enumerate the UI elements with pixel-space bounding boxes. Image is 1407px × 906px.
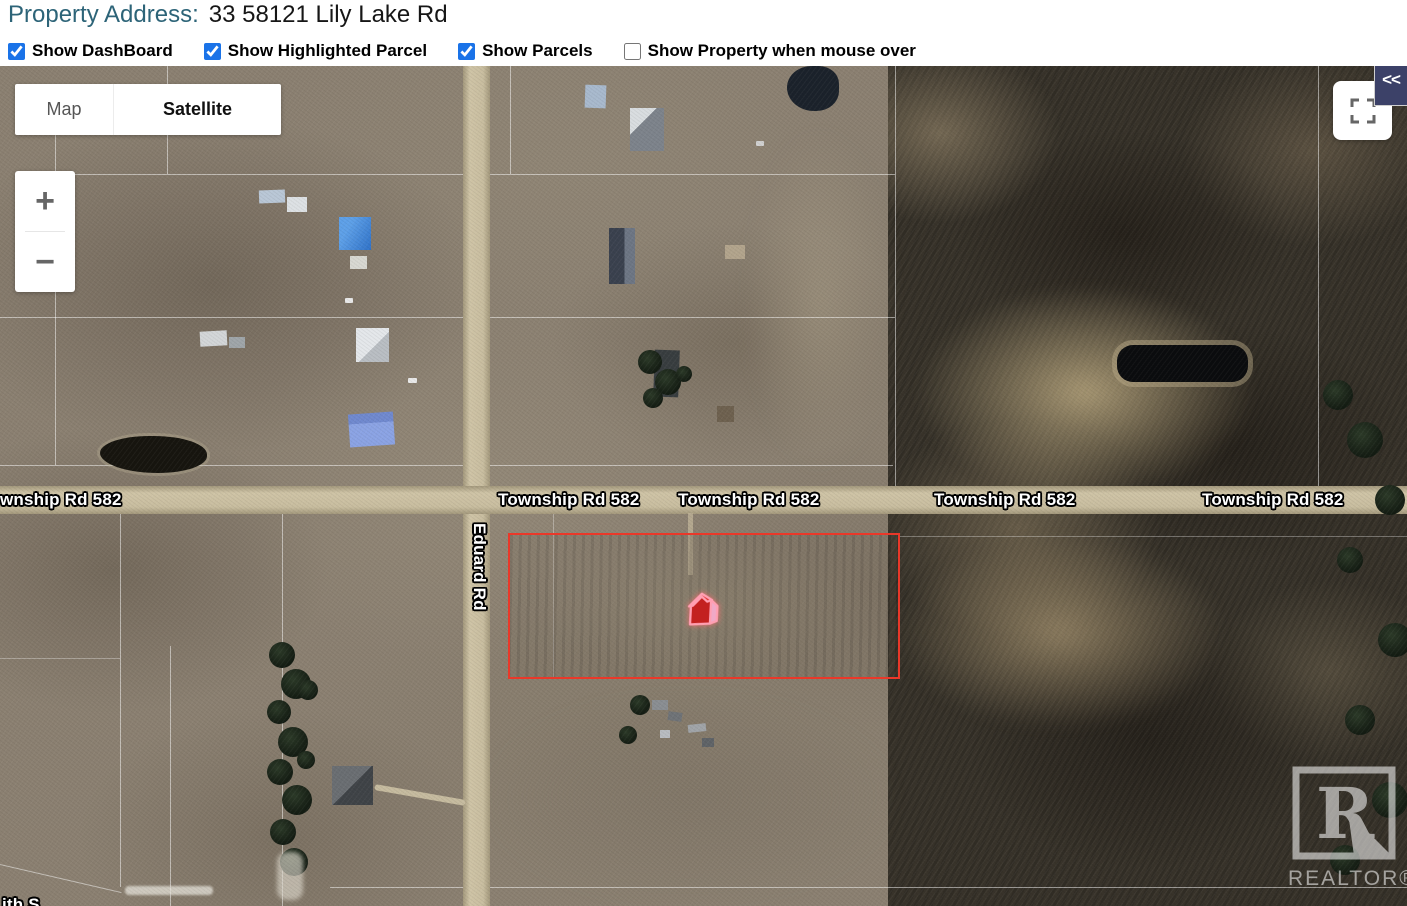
road-label-bottom-partial: ith S — [2, 895, 40, 906]
checkbox-show-dashboard[interactable]: Show DashBoard — [8, 41, 173, 61]
fullscreen-icon — [1350, 98, 1376, 124]
show-property-mouseover-label: Show Property when mouse over — [648, 41, 916, 61]
road-label-township: Township Rd 582 — [1202, 490, 1344, 510]
map-type-satellite-button[interactable]: Satellite — [114, 84, 281, 135]
map-type-control: Map Satellite — [15, 84, 281, 135]
road-label-eduard: Eduard Rd — [469, 523, 489, 611]
header-bar: Property Address:33 58121 Lily Lake Rd S… — [0, 0, 1407, 66]
show-parcels-label: Show Parcels — [482, 41, 593, 61]
property-house-marker[interactable] — [686, 588, 722, 632]
checkbox-show-property-mouseover[interactable]: Show Property when mouse over — [624, 41, 916, 61]
map-type-map-button[interactable]: Map — [15, 84, 114, 135]
property-address-value: 33 58121 Lily Lake Rd — [209, 1, 448, 28]
zoom-in-button[interactable]: + — [15, 171, 75, 231]
satellite-map-canvas[interactable]: wnship Rd 582 Township Rd 582 Township R… — [0, 66, 1407, 906]
road-label-township: Township Rd 582 — [498, 490, 640, 510]
road-label-township: Township Rd 582 — [678, 490, 820, 510]
show-property-mouseover-checkbox[interactable] — [624, 43, 641, 60]
show-dashboard-label: Show DashBoard — [32, 41, 173, 61]
realtor-watermark-text: REALTOR® — [1288, 867, 1400, 891]
show-highlighted-parcel-checkbox[interactable] — [204, 43, 221, 60]
show-parcels-checkbox[interactable] — [458, 43, 475, 60]
show-dashboard-checkbox[interactable] — [8, 43, 25, 60]
show-highlighted-parcel-label: Show Highlighted Parcel — [228, 41, 427, 61]
realtor-watermark: R REALTOR® — [1288, 766, 1400, 891]
property-address-label: Property Address: — [8, 1, 199, 28]
collapse-panel-button[interactable]: << — [1374, 66, 1407, 106]
checkbox-row: Show DashBoard Show Highlighted Parcel S… — [8, 41, 916, 61]
property-address-line: Property Address:33 58121 Lily Lake Rd — [8, 1, 448, 29]
road-label-township-partial: wnship Rd 582 — [0, 490, 122, 510]
house-3d-icon — [686, 588, 722, 632]
zoom-control: + − — [15, 171, 75, 292]
imagery-grain — [0, 66, 1407, 906]
checkbox-show-parcels[interactable]: Show Parcels — [458, 41, 593, 61]
checkbox-show-highlighted-parcel[interactable]: Show Highlighted Parcel — [204, 41, 427, 61]
realtor-logo-icon: R — [1292, 766, 1396, 860]
road-label-township: Township Rd 582 — [934, 490, 1076, 510]
zoom-out-button[interactable]: − — [15, 232, 75, 292]
